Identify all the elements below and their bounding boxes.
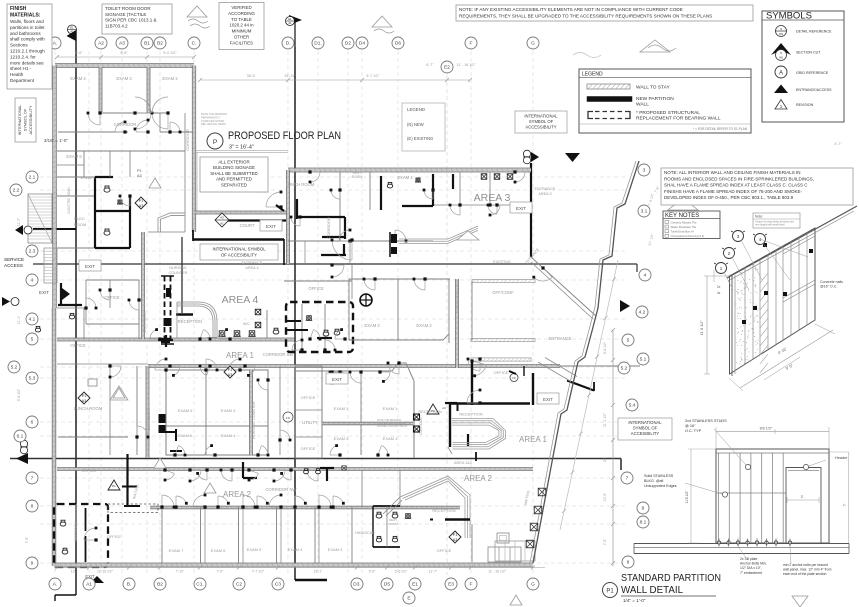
svg-text:* PROPOSED STRUCTURAL: * PROPOSED STRUCTURAL bbox=[636, 110, 700, 116]
svg-text:RECEPTION: RECEPTION bbox=[418, 409, 441, 414]
svg-text:RECEPTION: RECEPTION bbox=[459, 412, 482, 417]
svg-text:EXAM 3: EXAM 3 bbox=[116, 76, 132, 81]
svg-text:GRID REFERENCE: GRID REFERENCE bbox=[796, 71, 829, 75]
svg-text:O.C. TYP: O.C. TYP bbox=[685, 429, 702, 433]
svg-text:each end of the plate section: each end of the plate section bbox=[783, 572, 826, 576]
svg-text:25': 25' bbox=[603, 457, 607, 462]
svg-text:CORRIDOR: CORRIDOR bbox=[142, 311, 147, 333]
svg-text:AREA 3: AREA 3 bbox=[538, 192, 551, 196]
svg-text:EXAM 1: EXAM 1 bbox=[81, 175, 96, 180]
svg-text:OFFICE: OFFICE bbox=[107, 535, 121, 539]
svg-text:A3: A3 bbox=[220, 216, 224, 220]
svg-text:A1: A1 bbox=[220, 222, 224, 226]
svg-text:TOILET ROOM DOOR: TOILET ROOM DOOR bbox=[105, 6, 151, 11]
svg-text:E3: E3 bbox=[448, 582, 454, 588]
svg-text:E1: E1 bbox=[70, 26, 74, 30]
svg-text:EXAM K: EXAM K bbox=[177, 433, 192, 438]
svg-text:MATERIALS:: MATERIALS: bbox=[10, 13, 41, 19]
svg-text:Unsupported Edges: Unsupported Edges bbox=[644, 484, 677, 488]
svg-text:5: 5 bbox=[627, 338, 630, 344]
svg-text:OFFICE: OFFICE bbox=[437, 548, 452, 553]
svg-text:9'-0 1/2": 9'-0 1/2" bbox=[163, 51, 177, 55]
svg-text:RECEPTION: RECEPTION bbox=[178, 319, 202, 324]
svg-text:PROPOSED FLOOR PLAN: PROPOSED FLOOR PLAN bbox=[228, 130, 341, 142]
svg-text:CORRIDOR: CORRIDOR bbox=[419, 417, 423, 435]
svg-text:AREA 1: AREA 1 bbox=[226, 351, 255, 360]
svg-text:2.1: 2.1 bbox=[29, 175, 36, 181]
svg-text:F: F bbox=[470, 582, 473, 588]
svg-text:A1: A1 bbox=[86, 582, 92, 588]
svg-text:HANDICAP: HANDICAP bbox=[355, 531, 375, 535]
svg-text:P1: P1 bbox=[228, 368, 232, 372]
svg-text:EXAM 3: EXAM 3 bbox=[221, 408, 236, 413]
svg-text:sheet H1 -: sheet H1 - bbox=[10, 66, 32, 71]
svg-text:min 2 anchor bolts per braced: min 2 anchor bolts per braced bbox=[783, 563, 828, 567]
svg-text:8.1: 8.1 bbox=[640, 520, 647, 526]
svg-text:Water Resistant Tile: Water Resistant Tile bbox=[671, 225, 697, 229]
svg-text:EXAM 3: EXAM 3 bbox=[364, 323, 380, 328]
svg-text:OF ACCESIBILITY: OF ACCESIBILITY bbox=[221, 252, 257, 257]
svg-text:B2: B2 bbox=[157, 41, 163, 47]
svg-text:OFFICE: OFFICE bbox=[82, 468, 97, 473]
svg-text:EXAM 2: EXAM 2 bbox=[334, 436, 349, 441]
svg-text:4x: 4x bbox=[717, 291, 721, 295]
svg-text:EXIT: EXIT bbox=[266, 224, 276, 229]
svg-text:Header: Header bbox=[835, 456, 848, 460]
svg-text:CORRIDOR: CORRIDOR bbox=[326, 217, 331, 239]
svg-text:11'-16 1/2": 11'-16 1/2" bbox=[97, 570, 114, 574]
svg-text:ACCESSIBILITY: ACCESSIBILITY bbox=[525, 124, 556, 129]
svg-text:S: S bbox=[780, 27, 782, 31]
svg-text:P1: P1 bbox=[112, 484, 116, 488]
svg-text:ROOM: ROOM bbox=[74, 222, 86, 227]
svg-text:(N) NEW: (N) NEW bbox=[407, 122, 424, 127]
svg-text:7: 7 bbox=[626, 476, 629, 482]
svg-text:Concrete nails: Concrete nails bbox=[820, 280, 843, 284]
svg-text:A3: A3 bbox=[442, 406, 446, 410]
svg-text:Department: Department bbox=[10, 78, 35, 83]
svg-text:5'-6 1/2": 5'-6 1/2" bbox=[395, 570, 408, 574]
svg-text:@ 16": @ 16" bbox=[685, 424, 696, 428]
svg-text:4: 4 bbox=[644, 273, 647, 279]
svg-text:P1: P1 bbox=[453, 533, 457, 537]
svg-text:7'-5": 7'-5" bbox=[603, 538, 607, 545]
svg-text:2.3: 2.3 bbox=[29, 249, 36, 255]
svg-text:1210.2.4. for: 1210.2.4. for bbox=[10, 54, 36, 59]
svg-text:EXAM 4: EXAM 4 bbox=[70, 76, 86, 81]
svg-text:E1: E1 bbox=[288, 17, 292, 21]
svg-text:EXAM 2: EXAM 2 bbox=[416, 323, 432, 328]
svg-text:ENTRANCE: ENTRANCE bbox=[242, 261, 263, 265]
svg-text:ENTRANCE: ENTRANCE bbox=[535, 187, 556, 191]
svg-text:CORRIDOR: CORRIDOR bbox=[185, 129, 190, 151]
svg-text:EXAM 4: EXAM 4 bbox=[288, 547, 303, 552]
svg-text:NN: NN bbox=[779, 56, 783, 60]
svg-text:ACCESSIBILITY: ACCESSIBILITY bbox=[28, 105, 33, 134]
svg-text:6'-7": 6'-7" bbox=[426, 63, 434, 67]
svg-text:11'-7": 11'-7" bbox=[17, 217, 21, 226]
svg-text:A.: A. bbox=[53, 582, 58, 588]
svg-text:4.1: 4.1 bbox=[29, 317, 36, 323]
svg-text:SYMBOL OF: SYMBOL OF bbox=[23, 108, 28, 131]
svg-text:AREA 4: AREA 4 bbox=[245, 266, 258, 270]
svg-text:P1: P1 bbox=[139, 199, 143, 203]
svg-text:@16" O.C.: @16" O.C. bbox=[820, 285, 837, 289]
svg-text:2x4 STAINLESS STUDS: 2x4 STAINLESS STUDS bbox=[685, 419, 727, 423]
svg-text:9'-6": 9'-6" bbox=[75, 51, 83, 55]
svg-text:1020.2 44 in: 1020.2 44 in bbox=[229, 23, 254, 28]
svg-text:D6: D6 bbox=[395, 41, 401, 47]
svg-text:EXAM 5: EXAM 5 bbox=[66, 154, 82, 159]
svg-text:ENTRANCE/ACCESS: ENTRANCE/ACCESS bbox=[796, 88, 832, 92]
svg-text:C.: C. bbox=[192, 41, 197, 47]
svg-text:A3: A3 bbox=[119, 41, 125, 47]
svg-text:OFFICE: OFFICE bbox=[70, 343, 86, 348]
svg-text:C3: C3 bbox=[275, 582, 281, 588]
svg-text:15'-1": 15'-1" bbox=[314, 570, 323, 574]
svg-text:more details see: more details see bbox=[10, 60, 44, 65]
svg-text:INTERNATIONAL: INTERNATIONAL bbox=[628, 420, 662, 425]
svg-text:21'-1 1/2": 21'-1 1/2" bbox=[603, 412, 607, 427]
svg-text:11'-7": 11'-7" bbox=[429, 570, 438, 574]
svg-text:2.2: 2.2 bbox=[13, 188, 20, 194]
svg-text:D4: D4 bbox=[359, 41, 365, 47]
svg-text:EXAM 5: EXAM 5 bbox=[247, 547, 262, 552]
svg-text:OFF/CONF: OFF/CONF bbox=[492, 290, 514, 295]
svg-text:and bathrooms: and bathrooms bbox=[10, 31, 41, 36]
svg-text:A1: A1 bbox=[288, 21, 292, 25]
svg-text:partitions in toilet: partitions in toilet bbox=[10, 25, 45, 30]
svg-text:* = FOR DETAIL REFER TO S1 PLA: * = FOR DETAIL REFER TO S1 PLAN bbox=[693, 127, 748, 131]
svg-text:F: F bbox=[470, 41, 473, 47]
svg-text:8: 8 bbox=[642, 506, 645, 512]
svg-text:D3.: D3. bbox=[353, 582, 360, 588]
svg-text:ROOMS AND ENCLOSED SPACES IN F: ROOMS AND ENCLOSED SPACES IN FIRE-SPRINK… bbox=[664, 176, 814, 181]
svg-text:7': 7' bbox=[843, 503, 847, 506]
svg-text:KEY NOTES: KEY NOTES bbox=[665, 213, 699, 219]
svg-text:AND PERMITTED: AND PERMITTED bbox=[216, 177, 252, 182]
svg-text:DBL CEILING ITEMS: DBL CEILING ITEMS bbox=[201, 122, 226, 126]
svg-text:CORRIDOR # W: CORRIDOR # W bbox=[455, 283, 460, 313]
svg-text:7'-7 1/2": 7'-7 1/2" bbox=[252, 570, 265, 574]
svg-text:8: 8 bbox=[31, 504, 34, 510]
svg-text:REPLACEMENT FOR BEARING WALL: REPLACEMENT FOR BEARING WALL bbox=[636, 116, 721, 122]
svg-text:11' - 16 1/2": 11' - 16 1/2" bbox=[457, 63, 477, 67]
svg-text:11' - 16 1/2": 11' - 16 1/2" bbox=[488, 570, 507, 574]
svg-text:INTERNATIONAL: INTERNATIONAL bbox=[17, 104, 22, 136]
svg-text:2x Sill plate: 2x Sill plate bbox=[740, 557, 757, 561]
svg-text:SHALL BE SUBMITTED: SHALL BE SUBMITTED bbox=[210, 171, 257, 176]
svg-text:EXAM 1: EXAM 1 bbox=[383, 406, 398, 411]
svg-text:Note:: Note: bbox=[755, 215, 763, 219]
svg-text:PERMANENTLY: PERMANENTLY bbox=[201, 115, 221, 119]
svg-text:5: 5 bbox=[31, 337, 34, 343]
svg-text:LUNCH ROOM: LUNCH ROOM bbox=[286, 182, 315, 187]
svg-text:ENTRANCE: ENTRANCE bbox=[548, 336, 571, 341]
svg-text:C1.: C1. bbox=[196, 582, 203, 588]
svg-text:wall panel, max. 12" min 4" fr: wall panel, max. 12" min 4" from bbox=[783, 568, 832, 572]
svg-text:SECTION CUT: SECTION CUT bbox=[796, 51, 821, 55]
svg-text:EXAM 1: EXAM 1 bbox=[397, 175, 413, 180]
svg-text:OFFICE: OFFICE bbox=[494, 370, 509, 375]
svg-text:4: 4 bbox=[31, 278, 34, 284]
svg-text:OFFICE: OFFICE bbox=[308, 286, 324, 291]
svg-text:SYMBOLS: SYMBOLS bbox=[766, 11, 812, 22]
svg-text:SIGNAGE (TACTILE: SIGNAGE (TACTILE bbox=[105, 12, 146, 17]
svg-text:3/16" = 1'-0": 3/16" = 1'-0" bbox=[44, 138, 68, 143]
svg-text:Occupational Flooring 5 lb: Occupational Flooring 5 lb bbox=[671, 234, 705, 238]
svg-text:11' 8 1/2": 11' 8 1/2" bbox=[700, 320, 704, 335]
svg-text:SHAL HAVE A FLAME SPREAD INDEX: SHAL HAVE A FLAME SPREAD INDEX AT LEAST … bbox=[664, 183, 808, 188]
svg-text:3': 3' bbox=[801, 495, 804, 499]
svg-text:WALL: WALL bbox=[636, 102, 649, 108]
svg-text:9'-7 1/2": 9'-7 1/2" bbox=[366, 74, 380, 78]
svg-text:Anchor Bolts Min.: Anchor Bolts Min. bbox=[740, 562, 767, 566]
svg-text:ROOM: ROOM bbox=[352, 175, 363, 179]
svg-text:AREA 2: AREA 2 bbox=[223, 490, 252, 499]
svg-text:5.2: 5.2 bbox=[11, 365, 18, 371]
svg-text:ALL EXTERIOR: ALL EXTERIOR bbox=[218, 160, 249, 165]
svg-text:ELECTRIC PANEL: ELECTRIC PANEL bbox=[67, 186, 71, 213]
svg-text:LUNCH ROOM: LUNCH ROOM bbox=[74, 406, 103, 411]
svg-text:APPLIED FOLLOW THE A3: APPLIED FOLLOW THE A3 bbox=[377, 425, 407, 428]
svg-text:INTERNATIONAL: INTERNATIONAL bbox=[524, 114, 558, 119]
svg-text:SERVICE: SERVICE bbox=[4, 257, 24, 262]
svg-text:EXAM 4: EXAM 4 bbox=[178, 408, 193, 413]
svg-text:OFFICE: OFFICE bbox=[301, 446, 316, 451]
svg-text:CORRIDOR NW: CORRIDOR NW bbox=[266, 487, 297, 492]
svg-text:EXIT: EXIT bbox=[516, 206, 526, 211]
svg-text:ACCORDING: ACCORDING bbox=[228, 11, 255, 16]
svg-text:WALL DETAIL: WALL DETAIL bbox=[621, 584, 683, 596]
svg-text:9'-9": 9'-9" bbox=[120, 51, 128, 55]
svg-text:D.: D. bbox=[286, 41, 291, 47]
svg-text:OFFICE: OFFICE bbox=[104, 295, 120, 300]
svg-text:36'-5': 36'-5' bbox=[247, 74, 256, 78]
svg-text:SIGN PER CBC 1013.1 &: SIGN PER CBC 1013.1 & bbox=[105, 18, 157, 23]
svg-text:non-length-will-small level: non-length-will-small level bbox=[755, 223, 785, 227]
svg-text:9: 9 bbox=[627, 560, 630, 566]
svg-text:Ceramic Mosaic Tile: Ceramic Mosaic Tile bbox=[671, 220, 697, 224]
svg-text:NOTE: ALL INTERIOR WALL AND CE: NOTE: ALL INTERIOR WALL AND CEILING FINI… bbox=[664, 170, 800, 175]
svg-text:D2: D2 bbox=[345, 41, 351, 47]
svg-text:CORRIDOR: CORRIDOR bbox=[146, 409, 151, 431]
svg-text:VERIFIED: VERIFIED bbox=[231, 5, 251, 10]
svg-text:G: G bbox=[531, 41, 535, 47]
svg-text:FD: FD bbox=[512, 376, 516, 380]
svg-text:G: G bbox=[531, 582, 535, 588]
svg-text:7'-6": 7'-6" bbox=[217, 570, 225, 574]
svg-text:D5: D5 bbox=[384, 582, 390, 588]
svg-text:AREA 1: AREA 1 bbox=[519, 435, 548, 444]
svg-text:C2: C2 bbox=[236, 582, 242, 588]
svg-text:OFFICE: OFFICE bbox=[301, 395, 316, 400]
svg-text:N: N bbox=[780, 51, 782, 55]
svg-text:8'8 1/2": 8'8 1/2" bbox=[760, 427, 773, 431]
svg-text:INTERNATIONAL SYMBOL: INTERNATIONAL SYMBOL bbox=[212, 247, 266, 252]
svg-text:NN: NN bbox=[779, 32, 783, 36]
svg-text:UTILITY: UTILITY bbox=[302, 420, 318, 425]
svg-text:2x: 2x bbox=[717, 285, 721, 289]
svg-text:BUILDING SIGNAGE: BUILDING SIGNAGE bbox=[213, 165, 255, 170]
svg-text:ROOM: ROOM bbox=[388, 522, 398, 526]
svg-text:P1: P1 bbox=[82, 394, 86, 398]
svg-text:AREA 4: AREA 4 bbox=[222, 294, 259, 306]
svg-text:3" = 16'-4": 3" = 16'-4" bbox=[229, 145, 254, 151]
svg-text:5'-6 1/2": 5'-6 1/2" bbox=[603, 341, 607, 354]
svg-text:AREA 1&2: AREA 1&2 bbox=[454, 461, 472, 465]
svg-text:5.1: 5.1 bbox=[640, 357, 647, 363]
svg-text:EXAM 4: EXAM 4 bbox=[221, 433, 236, 438]
svg-text:AREA 2: AREA 2 bbox=[464, 474, 493, 483]
svg-text:A: A bbox=[779, 71, 783, 77]
svg-text:RECEPTION: RECEPTION bbox=[432, 508, 455, 513]
svg-text:REVISION: REVISION bbox=[796, 103, 814, 107]
svg-text:WALL TO STAY: WALL TO STAY bbox=[636, 85, 670, 91]
svg-text:1210.2.1 through: 1210.2.1 through bbox=[10, 49, 45, 54]
svg-text:MINIMUM: MINIMUM bbox=[232, 29, 252, 34]
svg-text:EXAM 3: EXAM 3 bbox=[328, 547, 343, 552]
svg-text:E1: E1 bbox=[412, 582, 418, 588]
svg-text:shall comply with: shall comply with bbox=[10, 37, 45, 42]
svg-text:E2: E2 bbox=[444, 65, 450, 71]
svg-text:11'8 1/2": 11'8 1/2" bbox=[685, 490, 689, 504]
svg-text:DETAIL REFERENCE: DETAIL REFERENCE bbox=[796, 30, 832, 34]
svg-text:5.2: 5.2 bbox=[621, 366, 628, 372]
svg-text:7: 7 bbox=[31, 476, 34, 482]
svg-text:CORRIDOR SW: CORRIDOR SW bbox=[263, 352, 294, 357]
svg-text:NURSING: NURSING bbox=[169, 266, 187, 270]
svg-text:SYMBOL OF: SYMBOL OF bbox=[529, 119, 554, 124]
svg-text:11B703.4.2: 11B703.4.2 bbox=[105, 23, 128, 28]
svg-text:EXISTING: EXISTING bbox=[493, 260, 511, 264]
svg-text:1/4" = 1'-0": 1/4" = 1'-0" bbox=[623, 598, 646, 603]
svg-text:4'-7": 4'-7" bbox=[834, 142, 842, 146]
svg-text:E: E bbox=[407, 596, 410, 602]
svg-text:REQUIREMENTS, THEY SHALL BE UP: REQUIREMENTS, THEY SHALL BE UPGRADED TO … bbox=[459, 14, 712, 19]
svg-text:A3: A3 bbox=[82, 399, 86, 403]
svg-text:Solid STAINLESS: Solid STAINLESS bbox=[644, 474, 674, 478]
svg-text:FACILITIES: FACILITIES bbox=[230, 40, 253, 45]
svg-text:6.1: 6.1 bbox=[17, 434, 24, 440]
svg-text:NURSING COUNTER: NURSING COUNTER bbox=[252, 401, 256, 439]
svg-text:FINISH: FINISH bbox=[10, 6, 27, 12]
svg-text:NEW PARTITION: NEW PARTITION bbox=[636, 96, 674, 102]
svg-text:ACCESS: ACCESS bbox=[4, 263, 23, 268]
svg-text:5'-6 1/2": 5'-6 1/2" bbox=[17, 388, 21, 401]
svg-text:ELEC.: ELEC. bbox=[74, 216, 86, 221]
svg-text:D1.: D1. bbox=[314, 41, 321, 47]
svg-text:P: P bbox=[213, 139, 217, 146]
svg-text:EXAM 7: EXAM 7 bbox=[169, 548, 184, 553]
svg-text:EXAM 2: EXAM 2 bbox=[162, 76, 178, 81]
svg-text:COURT: COURT bbox=[240, 223, 255, 228]
svg-text:3.1: 3.1 bbox=[641, 209, 648, 215]
svg-text:EXIT: EXIT bbox=[85, 264, 95, 269]
svg-text:(E) EXISTING: (E) EXISTING bbox=[407, 136, 433, 141]
svg-text:3: 3 bbox=[643, 168, 646, 174]
svg-text:A.: A. bbox=[53, 41, 58, 47]
svg-text:5.3: 5.3 bbox=[29, 376, 36, 382]
svg-text:11'-1": 11'-1" bbox=[17, 315, 21, 324]
svg-text:7'-10": 7'-10" bbox=[176, 570, 185, 574]
svg-text:B.: B. bbox=[127, 582, 132, 588]
svg-text:AREA 3: AREA 3 bbox=[474, 192, 511, 204]
svg-text:NOTE THE DRAWING: NOTE THE DRAWING bbox=[201, 112, 227, 116]
svg-text:A3: A3 bbox=[453, 538, 457, 542]
svg-text:CORRIDOR: CORRIDOR bbox=[114, 122, 137, 127]
svg-text:5'-6": 5'-6" bbox=[369, 570, 377, 574]
svg-text:DEVELOPED INDEX OF 0-450., PER: DEVELOPED INDEX OF 0-450., PER CBC 803.1… bbox=[664, 195, 794, 200]
svg-text:BLKG. @all: BLKG. @all bbox=[644, 479, 664, 483]
svg-text:10'-9": 10'-9" bbox=[603, 492, 607, 501]
svg-text:COMPLIES NOTED: COMPLIES NOTED bbox=[201, 119, 224, 123]
svg-text:B1: B1 bbox=[144, 41, 150, 47]
svg-text:1/2" DIA x 10",: 1/2" DIA x 10", bbox=[740, 566, 762, 570]
svg-text:SYMBOL OF: SYMBOL OF bbox=[633, 425, 658, 430]
svg-text:EXAM 1: EXAM 1 bbox=[383, 436, 398, 441]
svg-text:12': 12' bbox=[71, 570, 76, 574]
svg-text:EXIT: EXIT bbox=[543, 397, 553, 402]
svg-text:EXIT: EXIT bbox=[332, 377, 342, 382]
svg-text:A3: A3 bbox=[228, 373, 232, 377]
svg-text:Walls, floors and: Walls, floors and bbox=[10, 19, 44, 24]
svg-text:LEGEND: LEGEND bbox=[407, 107, 425, 112]
svg-text:STANDARD PARTITION: STANDARD PARTITION bbox=[621, 572, 721, 584]
svg-text:Toilet/Grab Bar x4: Toilet/Grab Bar x4 bbox=[671, 230, 695, 234]
svg-text:ACCESIBILITY: ACCESIBILITY bbox=[631, 431, 660, 436]
svg-text:P1: P1 bbox=[606, 589, 614, 595]
svg-text:EXIT: EXIT bbox=[39, 290, 49, 295]
svg-text:LEGEND: LEGEND bbox=[582, 72, 603, 78]
svg-text:Sections: Sections bbox=[10, 43, 28, 48]
svg-text:7" embedment: 7" embedment bbox=[740, 571, 762, 575]
svg-text:B2: B2 bbox=[157, 582, 163, 588]
svg-text:91'-11": 91'-11" bbox=[285, 74, 297, 78]
svg-text:SEPARATED: SEPARATED bbox=[221, 182, 247, 187]
svg-text:FINISHS HAVE A FLAME SPREAD IN: FINISHS HAVE A FLAME SPREAD INDEX OF 76-… bbox=[664, 189, 802, 194]
svg-text:TO TABLE: TO TABLE bbox=[231, 17, 252, 22]
svg-text:OTHER: OTHER bbox=[234, 35, 249, 40]
svg-text:W/C: W/C bbox=[243, 322, 250, 326]
svg-text:A3: A3 bbox=[139, 204, 143, 208]
svg-text:A3: A3 bbox=[137, 174, 142, 178]
svg-text:REST ROOM: REST ROOM bbox=[74, 522, 78, 542]
svg-text:P1: P1 bbox=[137, 169, 142, 173]
svg-text:9: 9 bbox=[31, 561, 34, 567]
svg-text:7'-5": 7'-5" bbox=[25, 536, 29, 544]
svg-text:COUNTER: COUNTER bbox=[169, 271, 188, 275]
svg-text:EXAM 2: EXAM 2 bbox=[334, 406, 349, 411]
svg-text:6: 6 bbox=[31, 420, 34, 426]
svg-text:4.2: 4.2 bbox=[639, 310, 646, 316]
svg-text:EXAM 6: EXAM 6 bbox=[211, 548, 226, 553]
svg-text:5.4: 5.4 bbox=[629, 403, 636, 409]
svg-text:A2: A2 bbox=[98, 41, 104, 47]
svg-text:Health: Health bbox=[10, 72, 24, 77]
svg-text:NOTE: IF ANY EXISTING ACCESSIB: NOTE: IF ANY EXISTING ACCESSIBILITY ELEM… bbox=[459, 7, 683, 12]
